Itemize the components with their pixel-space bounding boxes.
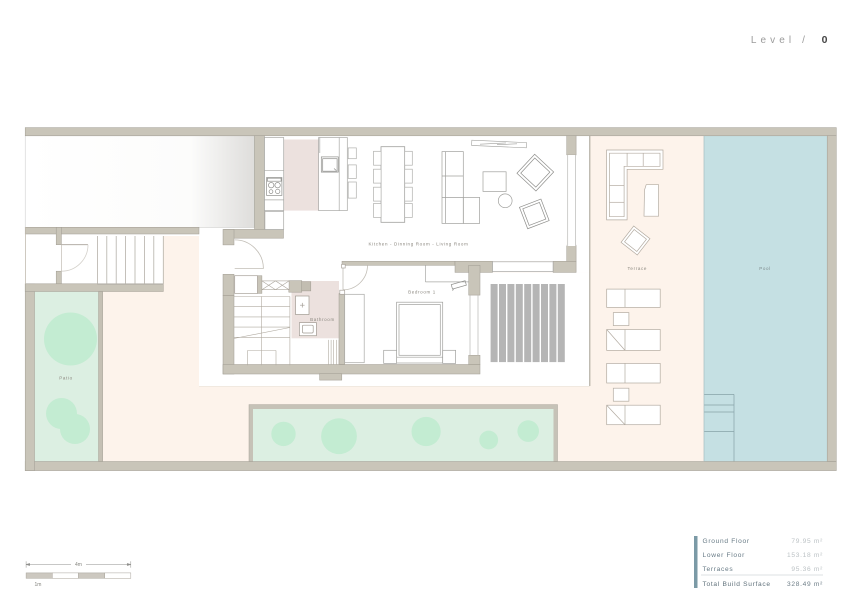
svg-text:Kitchen - Dinning Room - Livin: Kitchen - Dinning Room - Living Room (369, 242, 469, 247)
svg-text:Terrace: Terrace (628, 266, 648, 271)
svg-text:Pool: Pool (759, 266, 771, 271)
svg-text:Bathroom: Bathroom (310, 317, 335, 322)
svg-text:Level /: Level / (751, 35, 809, 46)
svg-text:1m: 1m (35, 582, 42, 588)
svg-text:Terraces: Terraces (703, 566, 734, 573)
svg-text:0: 0 (822, 34, 828, 46)
svg-text:328.49 m²: 328.49 m² (787, 581, 823, 588)
svg-text:79.95 m²: 79.95 m² (791, 538, 823, 545)
svg-text:Ground Floor: Ground Floor (703, 538, 750, 545)
svg-text:Bedroom 1: Bedroom 1 (408, 290, 436, 295)
svg-text:95.36 m²: 95.36 m² (791, 566, 823, 573)
svg-text:153.18 m²: 153.18 m² (787, 552, 823, 559)
svg-text:4m: 4m (75, 562, 82, 568)
svg-text:Patio: Patio (59, 376, 73, 381)
svg-text:Lower Floor: Lower Floor (703, 552, 746, 559)
svg-text:Total Build Surface: Total Build Surface (703, 581, 771, 588)
